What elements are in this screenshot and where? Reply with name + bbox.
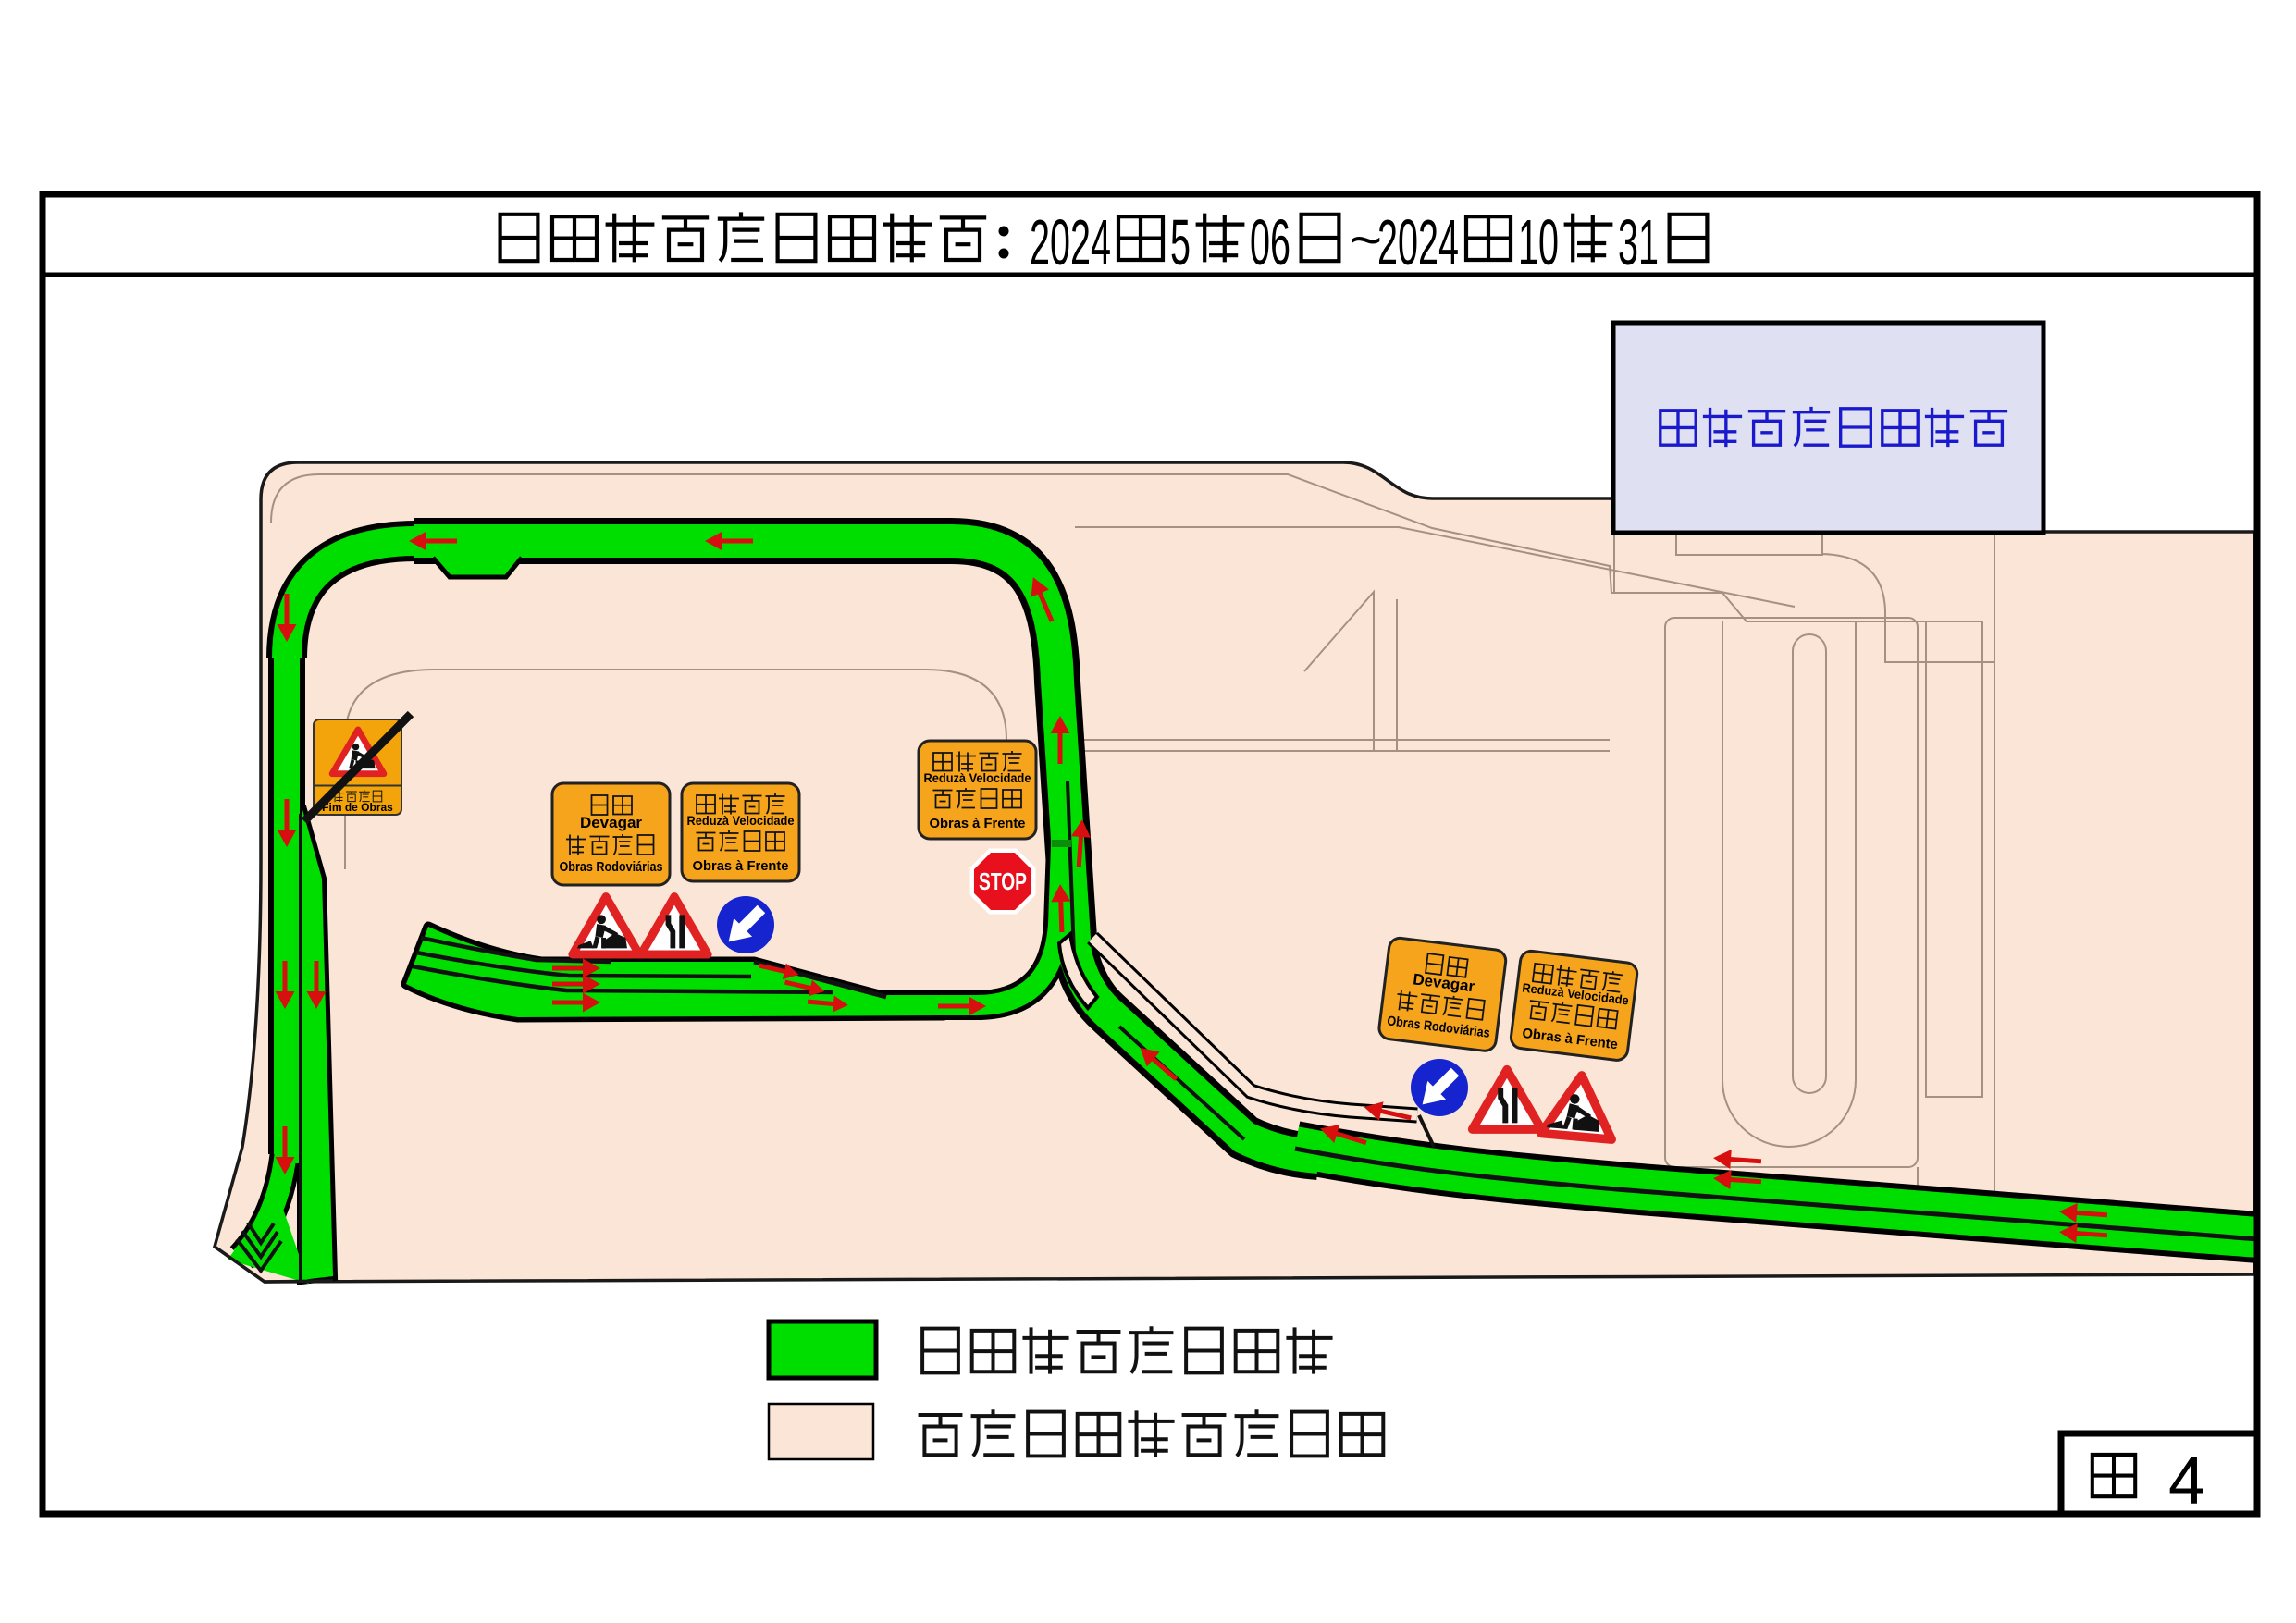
- svg-text:Fim de Obras: Fim de Obras: [322, 801, 393, 814]
- svg-text:Reduzà Velocidade: Reduzà Velocidade: [924, 771, 1031, 785]
- svg-text:06: 06: [1250, 206, 1290, 278]
- svg-text:2024: 2024: [1377, 206, 1459, 278]
- svg-text:10: 10: [1518, 206, 1559, 278]
- svg-text:31: 31: [1618, 206, 1659, 278]
- svg-text:2024: 2024: [1030, 206, 1111, 278]
- svg-text:Obras à Frente: Obras à Frente: [693, 858, 789, 874]
- svg-text:Devagar: Devagar: [580, 814, 642, 831]
- svg-text:Obras à Frente: Obras à Frente: [930, 816, 1026, 831]
- svg-text:4: 4: [2168, 1445, 2205, 1518]
- svg-text:5: 5: [1170, 206, 1191, 278]
- svg-text:Reduzà Velocidade: Reduzà Velocidade: [687, 814, 795, 828]
- svg-text:STOP: STOP: [979, 867, 1027, 895]
- svg-text:Obras Rodoviárias: Obras Rodoviárias: [560, 860, 663, 875]
